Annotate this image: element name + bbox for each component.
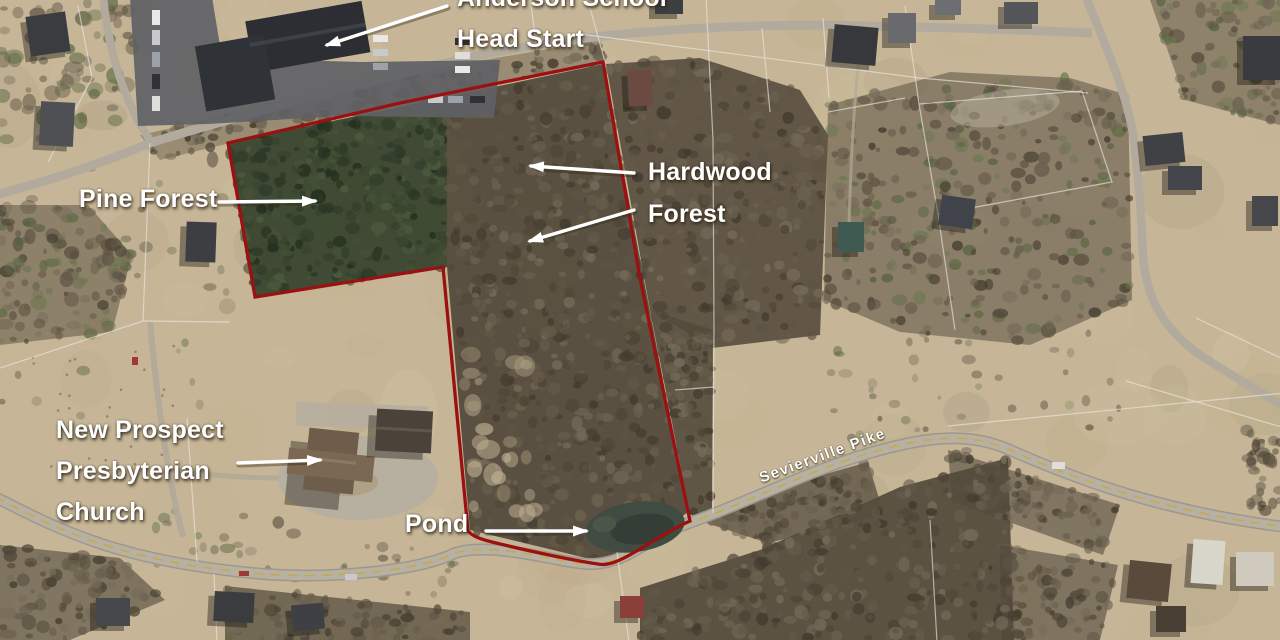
car — [152, 96, 160, 111]
label-hardwood: Hardwood — [648, 160, 772, 185]
house — [179, 221, 217, 267]
car — [152, 10, 160, 25]
house — [19, 11, 71, 62]
pine-forest-arrow — [219, 201, 315, 204]
car — [448, 96, 463, 103]
car — [345, 574, 357, 580]
car — [132, 357, 138, 365]
label-church: Church — [56, 500, 145, 525]
house — [1230, 552, 1274, 591]
car — [455, 66, 470, 73]
house — [90, 598, 130, 631]
car — [152, 52, 160, 67]
label-pond: Pond — [405, 512, 468, 537]
house — [1184, 539, 1225, 591]
car — [373, 63, 388, 70]
label-presbyterian: Presbyterian — [56, 459, 210, 484]
car — [373, 49, 388, 56]
house — [931, 194, 975, 234]
label-pine-forest: Pine Forest — [79, 187, 217, 212]
house — [1120, 559, 1172, 607]
house — [1137, 132, 1186, 172]
house — [1237, 36, 1280, 85]
pond-arrow — [486, 531, 586, 533]
label-head-start: Head Start — [457, 27, 584, 52]
car — [1052, 462, 1065, 469]
aerial-map: Anderson School Head Start Pine Forest H… — [0, 0, 1280, 640]
car — [455, 52, 470, 59]
house — [1162, 166, 1202, 195]
house — [998, 2, 1038, 29]
house — [1246, 196, 1278, 231]
aerial-imagery — [0, 0, 1280, 640]
church-annex-building — [367, 409, 433, 460]
house — [832, 222, 864, 257]
house — [621, 69, 653, 112]
house — [825, 24, 879, 71]
car — [470, 96, 485, 103]
car — [152, 74, 160, 89]
label-new-prospect: New Prospect — [56, 418, 224, 443]
house — [207, 591, 255, 628]
label-anderson-school: Anderson School — [457, 0, 667, 11]
car — [239, 571, 249, 576]
house — [882, 13, 916, 48]
car — [373, 35, 388, 42]
label-hardwood-forest: Forest — [648, 202, 726, 227]
car — [152, 30, 160, 45]
house — [33, 101, 76, 152]
